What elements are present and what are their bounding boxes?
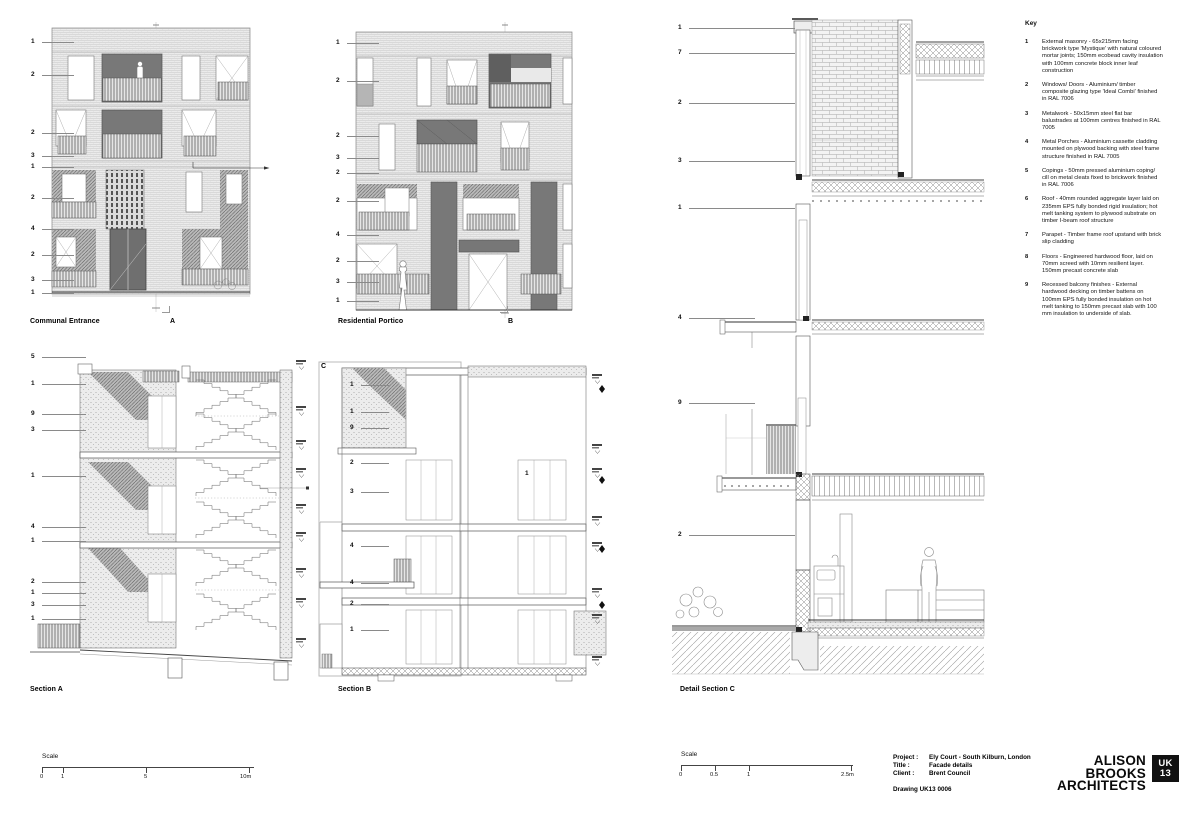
section-marker xyxy=(162,306,170,313)
callout: 1 xyxy=(336,39,346,47)
scale-tick: 0 xyxy=(679,772,682,779)
callout: 4 xyxy=(31,523,41,531)
left-wall xyxy=(78,364,176,648)
title-label: Title : xyxy=(893,762,929,770)
elevation-b-label: Residential Portico xyxy=(338,318,403,326)
shrub xyxy=(676,587,723,618)
elevation-b-drawing xyxy=(355,22,573,318)
key-item: 5 Copings - 50mm pressed aluminium copin… xyxy=(1025,168,1181,190)
key-item: 3 Metalwork - 50x15mm steel flat bar bal… xyxy=(1025,111,1181,133)
person-figure xyxy=(399,261,407,310)
key-item: 4 Metal Porches - Aluminium cassette cla… xyxy=(1025,139,1181,161)
right-wall xyxy=(260,360,309,658)
callout: 2 xyxy=(31,71,41,79)
callout: 1 xyxy=(31,380,41,388)
person-figure xyxy=(920,548,937,623)
key-item-number: 4 xyxy=(1025,139,1042,161)
callout: 2 xyxy=(678,99,688,107)
balcony xyxy=(320,522,414,588)
callout: 2 xyxy=(31,194,41,202)
project-value: Ely Court - South Kilburn, London xyxy=(929,754,1031,761)
callout: 9 xyxy=(350,424,360,432)
key-item-number: 2 xyxy=(1025,82,1042,104)
callout: 1 xyxy=(336,297,346,305)
callout: 2 xyxy=(31,129,41,137)
callout: 1 xyxy=(31,163,41,171)
ground xyxy=(342,611,606,681)
key-item-number: 6 xyxy=(1025,196,1042,225)
key-list: 1 External masonry - 65x215mm facing bri… xyxy=(1025,39,1181,318)
section-a-drawing xyxy=(30,356,315,688)
scale-tick: 2.5m xyxy=(841,772,854,779)
ground xyxy=(672,620,984,674)
callout: 3 xyxy=(336,278,346,286)
key-item: 8 Floors - Engineered hardwood floor, la… xyxy=(1025,254,1181,276)
project-label: Project : xyxy=(893,754,929,762)
scale-tick: 10m xyxy=(240,774,251,781)
detail-section-c-drawing xyxy=(672,14,984,680)
key-item-number: 8 xyxy=(1025,254,1042,276)
key-item: 6 Roof - 40mm rounded aggregate layer la… xyxy=(1025,196,1181,225)
section-marker xyxy=(500,306,508,313)
key-item: 9 Recessed balcony finishes - External h… xyxy=(1025,282,1181,318)
key-item-text: External masonry - 65x215mm facing brick… xyxy=(1042,39,1163,75)
callout: 7 xyxy=(678,49,688,57)
callout: 2 xyxy=(678,531,688,539)
key-item-text: Metalwork - 50x15mm steel flat bar balus… xyxy=(1042,111,1163,133)
callout: 1 xyxy=(350,626,360,634)
callout: 4 xyxy=(350,542,360,550)
floor-slab-1 xyxy=(812,180,984,201)
key-title: Key xyxy=(1025,20,1181,28)
callout: 3 xyxy=(31,601,41,609)
drawing-sheet: 1 2 2 3 1 2 4 2 3 1 1 2 2 3 2 2 4 2 3 1 … xyxy=(0,0,1186,823)
detail-ref-c: C xyxy=(321,363,326,371)
key-item: 7 Parapet - Timber frame roof upstand wi… xyxy=(1025,232,1181,246)
logo-line-2: ARCHITECTS xyxy=(1036,780,1146,793)
callout: 3 xyxy=(31,426,41,434)
callout: 2 xyxy=(336,197,346,205)
callout: 3 xyxy=(678,157,688,165)
floor-slab-2 xyxy=(720,320,984,334)
key-item-number: 5 xyxy=(1025,168,1042,190)
stairs xyxy=(195,380,279,630)
key-item-text: Roof - 40mm rounded aggregate layer laid… xyxy=(1042,196,1163,225)
callout: 1 xyxy=(678,204,688,212)
callout: 9 xyxy=(31,410,41,418)
key-item-number: 1 xyxy=(1025,39,1042,75)
callout: 3 xyxy=(336,154,346,162)
elevation-a-label: Communal Entrance xyxy=(30,318,100,326)
callout: 1 xyxy=(525,470,529,478)
scale-bar-sections: Scale 0 1 5 10m xyxy=(42,753,254,782)
callout: 2 xyxy=(336,132,346,140)
callout: 2 xyxy=(350,600,360,608)
key-item-number: 9 xyxy=(1025,282,1042,318)
scale-tick: 5 xyxy=(144,774,147,781)
callout: 4 xyxy=(350,579,360,587)
scale-tick: 1 xyxy=(747,772,750,779)
roof-assembly xyxy=(916,42,984,80)
drawing-number: Drawing UK13 0006 xyxy=(893,786,1031,794)
scale-bar-detail: Scale 0 0.5 1 2.5m xyxy=(681,751,853,780)
key-item-text: Parapet - Timber frame roof upstand with… xyxy=(1042,232,1163,246)
callout: 2 xyxy=(31,578,41,586)
key-item-text: Copings - 50mm pressed aluminium coping/… xyxy=(1042,168,1163,190)
key-item: 1 External masonry - 65x215mm facing bri… xyxy=(1025,39,1181,75)
elevation-a-ref: A xyxy=(170,318,175,326)
callout: 1 xyxy=(31,615,41,623)
scale-label: Scale xyxy=(681,751,853,759)
architect-logo: ALISON BROOKS ARCHITECTS xyxy=(1036,755,1146,793)
client-value: Brent Council xyxy=(929,770,970,777)
callout: 1 xyxy=(350,408,360,416)
callout: 1 xyxy=(31,38,41,46)
detail-section-c-label: Detail Section C xyxy=(680,686,735,694)
section-b-drawing xyxy=(318,356,610,686)
key-item-number: 3 xyxy=(1025,111,1042,133)
callout: 2 xyxy=(350,459,360,467)
elevation-b-ref: B xyxy=(508,318,513,326)
callout: 1 xyxy=(350,381,360,389)
key-item-number: 7 xyxy=(1025,232,1042,246)
callout: 4 xyxy=(31,225,41,233)
key-item: 2 Windows/ Doors - Aluminium/ timber com… xyxy=(1025,82,1181,104)
callout: 1 xyxy=(31,289,41,297)
scale-tick: 0.5 xyxy=(710,772,718,779)
callout: 9 xyxy=(678,399,688,407)
facade xyxy=(356,32,572,310)
scale-tick: 0 xyxy=(40,774,43,781)
callout: 1 xyxy=(31,472,41,480)
key-item-text: Floors - Engineered hardwood floor, laid… xyxy=(1042,254,1163,276)
client-label: Client : xyxy=(893,770,929,778)
key-panel: Key 1 External masonry - 65x215mm facing… xyxy=(1025,20,1181,325)
callout: 3 xyxy=(350,488,360,496)
facade xyxy=(52,28,250,296)
windows xyxy=(406,460,566,664)
scale-tick: 1 xyxy=(61,774,64,781)
key-item-text: Windows/ Doors - Aluminium/ timber compo… xyxy=(1042,82,1163,104)
callout: 3 xyxy=(31,152,41,160)
elevation-a-drawing xyxy=(50,22,272,314)
key-item-text: Metal Porches - Aluminium cassette cladd… xyxy=(1042,139,1163,161)
inner-wall-top xyxy=(898,20,912,178)
title-block: Project :Ely Court - South Kilburn, Lond… xyxy=(893,754,1031,794)
callout: 2 xyxy=(336,257,346,265)
callout: 1 xyxy=(31,537,41,545)
callout: 4 xyxy=(336,231,346,239)
callout: 3 xyxy=(31,276,41,284)
lower-porch xyxy=(320,624,342,668)
balcony-level xyxy=(717,414,984,500)
section-b-label: Section B xyxy=(338,686,371,694)
scale-label: Scale xyxy=(42,753,254,761)
callout: 5 xyxy=(31,353,41,361)
uk13-badge: UK 13 xyxy=(1152,755,1179,782)
title-value: Facade details xyxy=(929,762,972,769)
callout: 2 xyxy=(31,251,41,259)
roof-deck xyxy=(143,366,292,382)
scale-line xyxy=(681,765,853,772)
brick-face xyxy=(812,20,898,176)
kitchen xyxy=(814,514,852,622)
logo-line-1: ALISON BROOKS xyxy=(1036,755,1146,780)
callout: 1 xyxy=(31,589,41,597)
main-wall xyxy=(796,30,810,632)
callout: 2 xyxy=(336,77,346,85)
callout: 2 xyxy=(336,169,346,177)
key-item-text: Recessed balcony finishes - External har… xyxy=(1042,282,1163,318)
section-a-label: Section A xyxy=(30,686,63,694)
callout: 1 xyxy=(678,24,688,32)
scale-line xyxy=(42,767,254,774)
callout: 4 xyxy=(678,314,688,322)
